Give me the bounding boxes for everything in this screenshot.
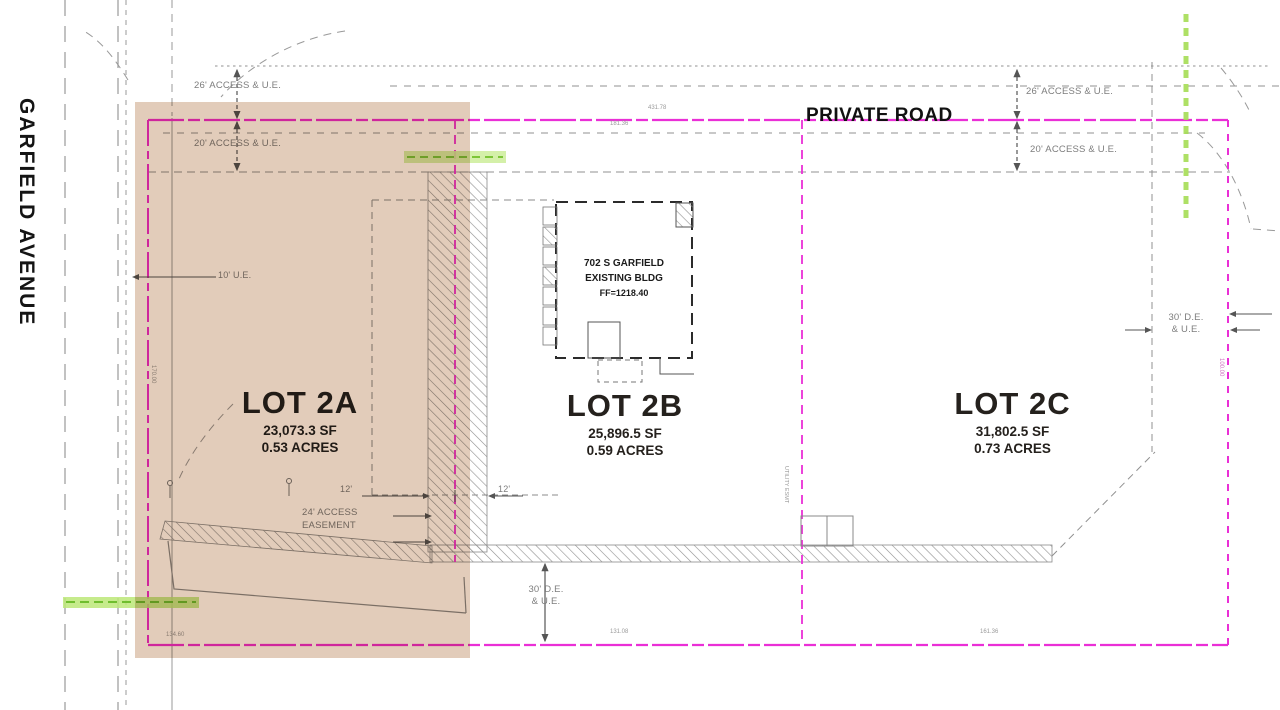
lot-2b-region[interactable] [460,125,800,640]
access-26-left-label: 26' ACCESS & U.E. [194,80,281,91]
lot-2a-region[interactable] [150,125,450,640]
street-name-garfield: GARFIELD AVENUE [14,98,38,338]
site-plan: GARFIELD AVENUE PRIVATE ROAD 26' ACCESS … [0,0,1280,710]
lot-2c-region[interactable] [805,125,1225,640]
dimension-text: 431.78 [648,105,666,111]
private-road-label: PRIVATE ROAD [806,105,953,127]
access-26-right-label: 26' ACCESS & U.E. [1026,86,1113,97]
